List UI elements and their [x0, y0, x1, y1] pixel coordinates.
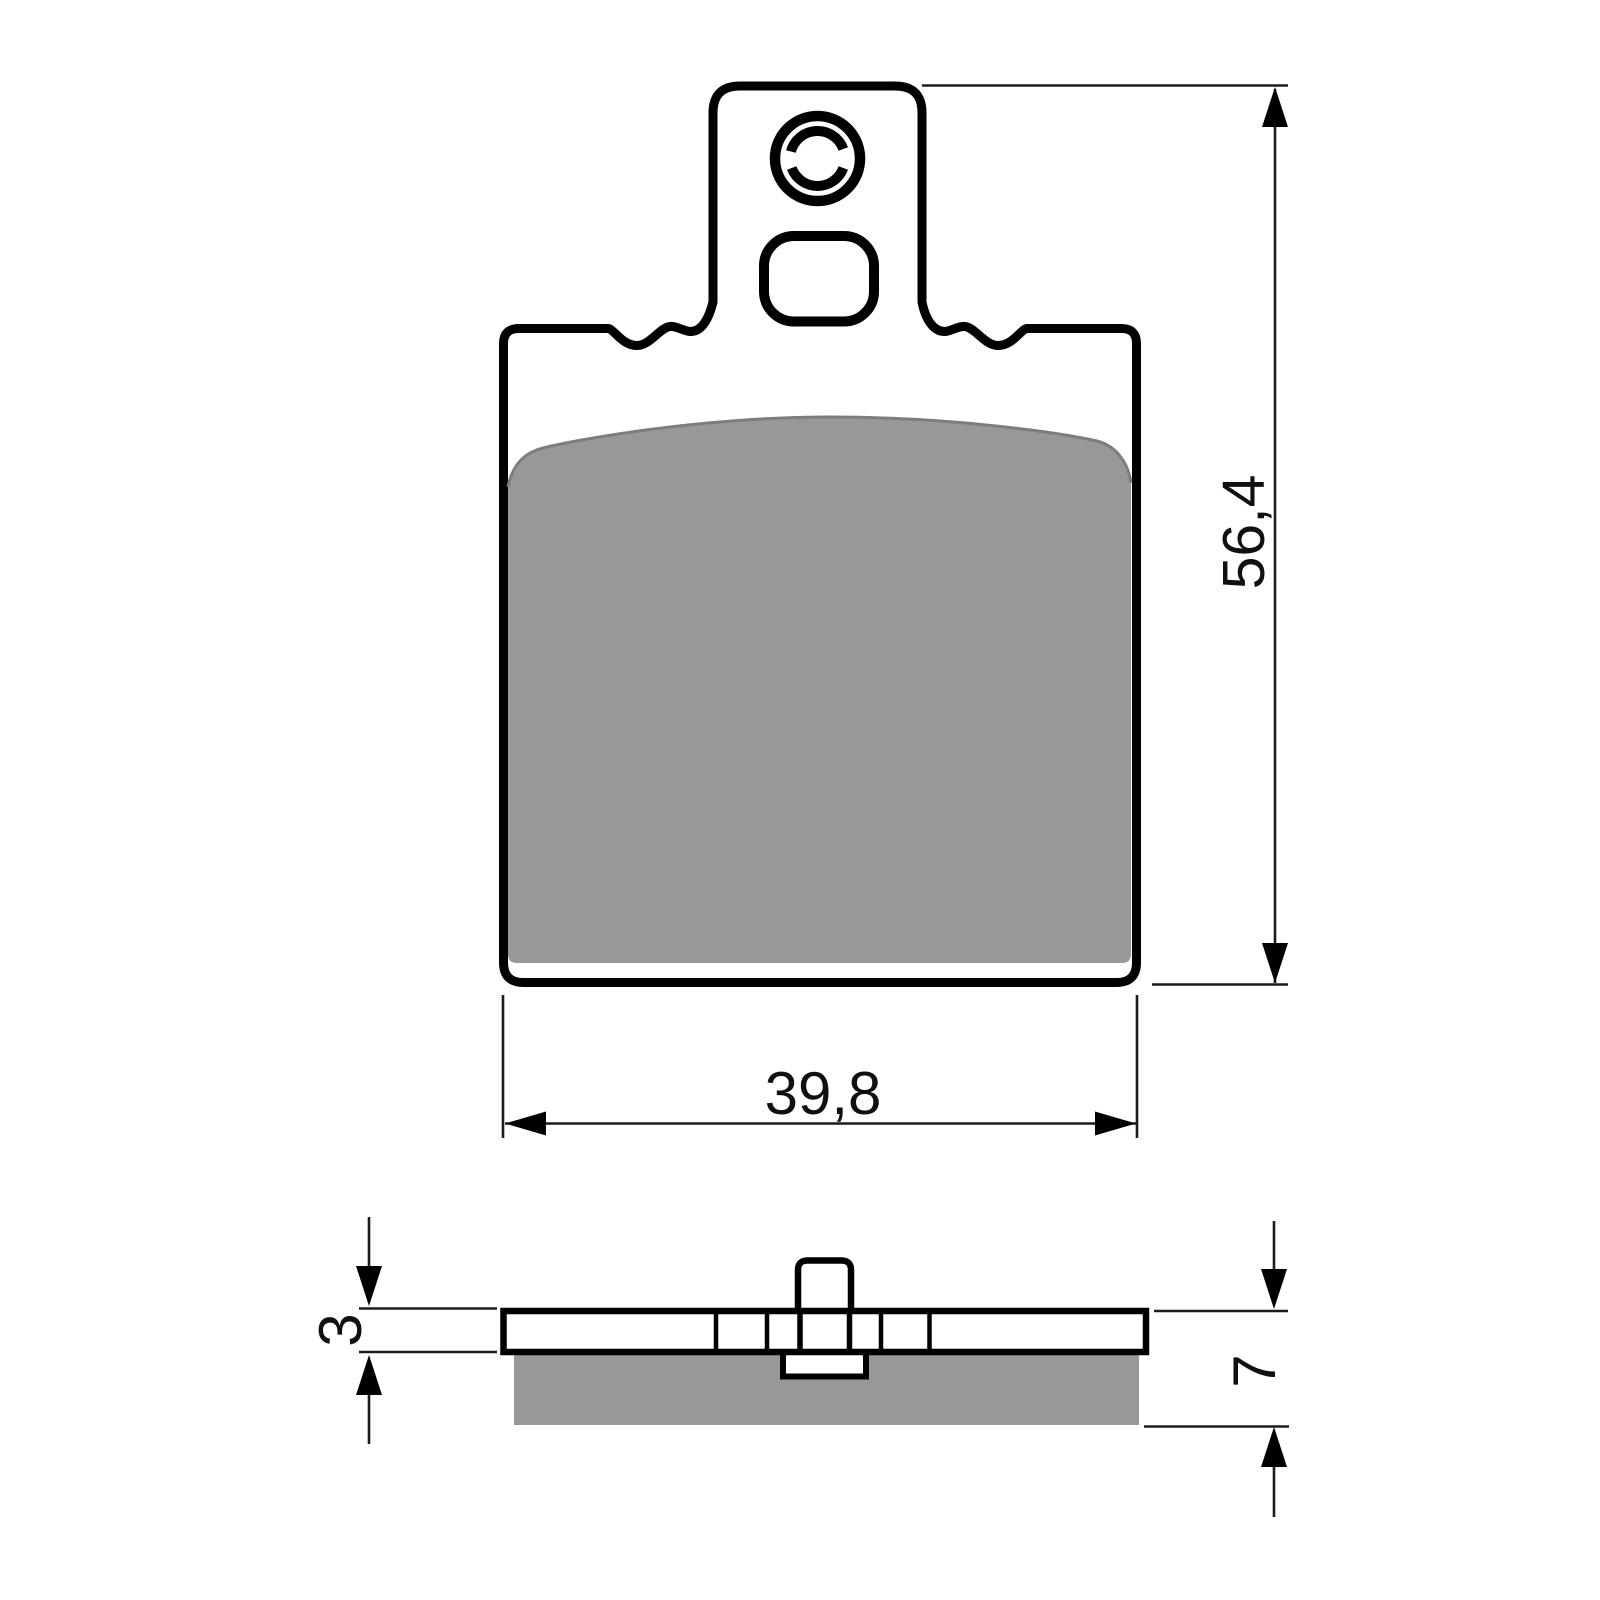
svg-text:56,4: 56,4	[1211, 475, 1277, 590]
svg-text:39,8: 39,8	[765, 1060, 882, 1127]
svg-text:7: 7	[1221, 1354, 1288, 1387]
svg-text:3: 3	[307, 1313, 374, 1346]
